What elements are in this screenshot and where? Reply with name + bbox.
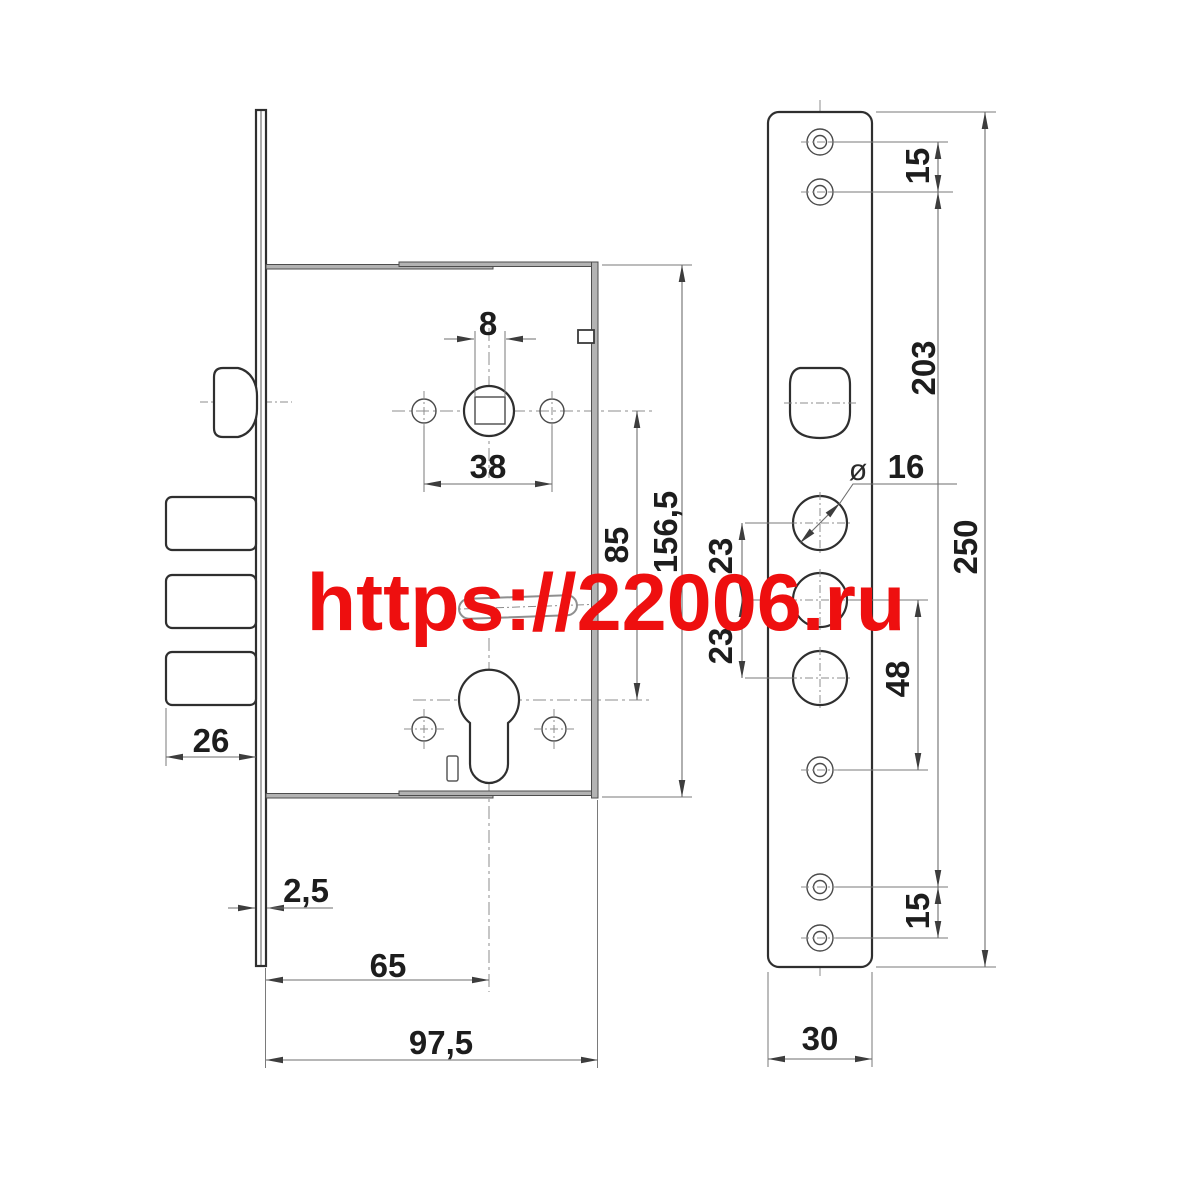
dim-body-depth: 97,5 [409, 1024, 473, 1061]
cylinder-profile [404, 670, 574, 783]
dim-screw-spacing-bottom: 15 [899, 893, 936, 930]
dim-plate-width: 30 [802, 1020, 839, 1057]
dim-handle-hole-span: 38 [470, 448, 507, 485]
dim-screw-spacing-top: 15 [899, 148, 936, 185]
lock-technical-drawing: 8 38 26 2,5 65 97,5 85 156,5 15 203 ø 16… [0, 0, 1200, 1200]
dim-plate-length: 250 [947, 519, 984, 574]
latch-bolt [214, 368, 257, 437]
dim-cylinder-to-screw: 48 [879, 661, 916, 698]
diameter-symbol: ø [849, 454, 867, 487]
dim-hole-diameter: 16 [888, 448, 925, 485]
lock-body-edges [266, 262, 598, 798]
deadbolts [166, 497, 256, 705]
small-slot [447, 756, 458, 781]
watermark-text: https://22006.ru [307, 558, 906, 648]
drawing-canvas: 8 38 26 2,5 65 97,5 85 156,5 15 203 ø 16… [0, 0, 1200, 1200]
dim-spindle-square: 8 [479, 305, 497, 342]
dim-backset: 65 [370, 947, 407, 984]
faceplate-side [256, 110, 266, 966]
body-tab [578, 330, 594, 343]
dim-bolt-protrusion: 26 [193, 722, 230, 759]
dim-screw-span: 203 [905, 340, 942, 395]
dim-faceplate-thickness: 2,5 [283, 872, 329, 909]
centerlines-side [200, 328, 652, 992]
